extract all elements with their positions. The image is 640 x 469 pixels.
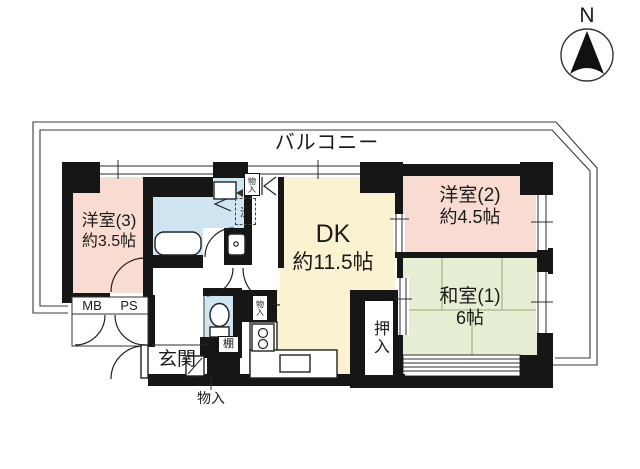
door-arc-entrance [111, 346, 144, 379]
shelf-label: 棚 [218, 336, 239, 353]
floorplan-page: N バルコニー 洋室(3) 約3.5帖 DK 約11.5帖 洋室(2) 約4.5… [0, 0, 640, 469]
room-dk-label: DK 約11.5帖 [258, 219, 408, 275]
storage-entrance-label: 物入 [189, 390, 233, 407]
room-western2-label: 洋室(2) 約4.5帖 [398, 184, 542, 229]
room-western3-size: 約3.5帖 [63, 232, 155, 252]
room-western2-size: 約4.5帖 [398, 207, 542, 229]
laundry-label: 洗 [235, 198, 256, 225]
engawa-strip [403, 355, 520, 376]
room-western3-label: 洋室(3) 約3.5帖 [63, 211, 155, 251]
room-japanese1-size: 6帖 [398, 308, 542, 330]
oshiire-closet-label: 押入 [363, 299, 395, 377]
pipe-space-label: PS [113, 298, 145, 314]
washer-pan [214, 182, 236, 199]
storage-top-label: 物入 [244, 173, 260, 196]
room-western3-name: 洋室(3) [63, 211, 155, 232]
sink-icon [280, 355, 310, 372]
entrance-label: 玄関 [150, 348, 204, 371]
room-japanese1-label: 和室(1) 6帖 [398, 285, 542, 330]
washbasin-icon [228, 234, 245, 255]
meter-box-compartment [72, 314, 148, 346]
compass-north-label: N [572, 3, 602, 29]
room-western2-name: 洋室(2) [398, 184, 542, 207]
toilet-icon [210, 304, 229, 327]
closet-bifold-door-icon [262, 177, 276, 195]
room-japanese1-name: 和室(1) [398, 285, 542, 308]
balcony-label: バルコニー [237, 131, 417, 155]
bathtub-icon [155, 232, 201, 255]
room-dk-size: 約11.5帖 [258, 250, 408, 276]
storage-kitchen-label: 物入 [252, 295, 268, 321]
entrance-door-leaf [141, 345, 148, 378]
meter-box-label: MB [76, 298, 108, 314]
room-dk-name: DK [258, 219, 408, 250]
